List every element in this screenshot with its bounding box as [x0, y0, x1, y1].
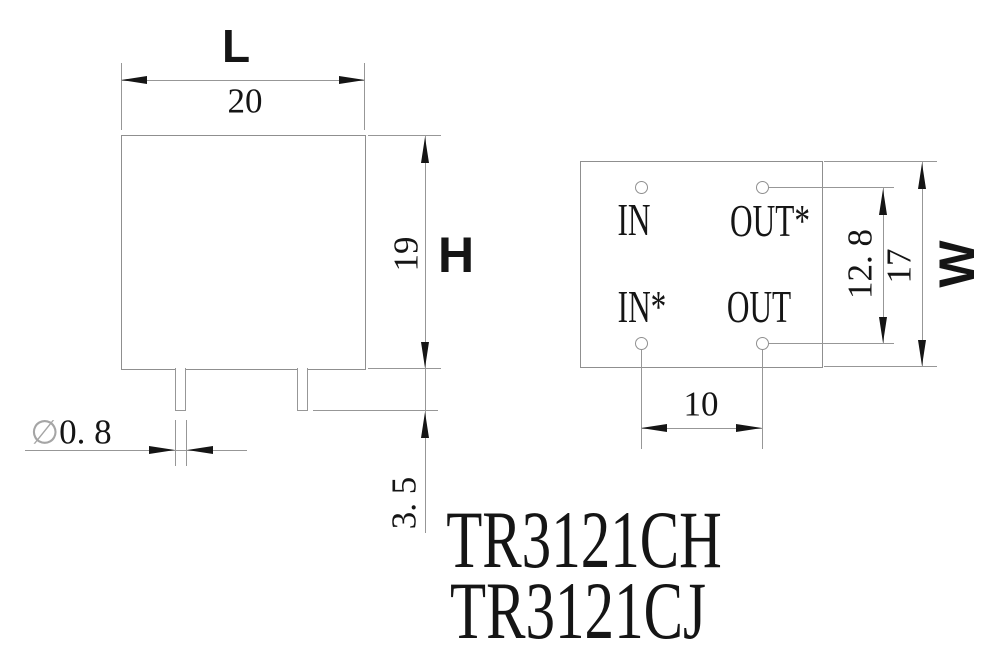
row-spacing-value: 12. 8	[843, 229, 878, 299]
arrowhead-right-icon	[149, 446, 175, 454]
arrowhead-up-icon	[421, 412, 429, 438]
row-spacing-leader-top	[769, 187, 894, 188]
col-spacing-extension-left	[641, 350, 642, 449]
pin-length-dimension-line	[425, 369, 426, 533]
pin-hole-bottom-right	[756, 337, 769, 350]
width-letter-label: W	[932, 240, 982, 287]
col-spacing-extension-right	[762, 350, 763, 449]
arrowhead-left-icon	[121, 76, 147, 84]
pin-label-in: IN	[617, 197, 650, 243]
arrowhead-left-icon	[187, 446, 213, 454]
height-letter-label: H	[438, 230, 474, 280]
pin-hole-top-left	[635, 181, 648, 194]
pin-hole-bottom-left	[635, 337, 648, 350]
length-value: 20	[228, 84, 263, 119]
col-spacing-value: 10	[684, 387, 719, 422]
arrowhead-right-icon	[339, 76, 365, 84]
width-value: 17	[882, 249, 917, 284]
pin-length-value: 3. 5	[387, 477, 422, 530]
pin-diameter-extension-right	[186, 420, 187, 466]
width-extension-bottom	[824, 366, 937, 367]
component-body-bottom	[580, 161, 823, 368]
arrowhead-down-icon	[879, 317, 887, 343]
length-letter-label: L	[222, 23, 250, 69]
pin-label-out-star: OUT*	[730, 198, 810, 244]
pin-diameter-extension-left	[175, 420, 176, 466]
pin-diameter-label: ∅0. 8	[30, 415, 111, 450]
arrowhead-down-icon	[918, 340, 926, 366]
arrowhead-up-icon	[421, 137, 429, 163]
pin-label-in-star: IN*	[618, 284, 667, 330]
width-extension-top	[824, 161, 937, 162]
length-extension-right	[364, 63, 365, 130]
length-extension-left	[121, 63, 122, 130]
pin-label-out: OUT	[727, 284, 791, 330]
arrowhead-up-icon	[879, 189, 887, 215]
arrowhead-right-icon	[736, 424, 762, 432]
pin-left	[175, 368, 186, 411]
technical-drawing: L 20 19 H 3. 5 ∅0. 8 IN O	[0, 0, 1000, 658]
pin-right	[297, 368, 308, 411]
height-value: 19	[389, 237, 424, 272]
arrowhead-left-icon	[641, 424, 667, 432]
component-body-front	[121, 135, 366, 370]
arrowhead-up-icon	[918, 163, 926, 189]
pin-length-extension	[313, 410, 438, 411]
arrowhead-down-icon	[421, 342, 429, 368]
width-dimension-line	[922, 162, 923, 366]
diameter-symbol-icon: ∅	[30, 413, 59, 452]
part-number-2: TR3121CJ	[450, 570, 706, 652]
row-spacing-leader-bottom	[769, 343, 894, 344]
pin-hole-top-right	[756, 181, 769, 194]
pin-diameter-value: 0. 8	[59, 413, 112, 452]
height-extension-bottom	[368, 368, 441, 369]
height-extension-top	[368, 135, 441, 136]
